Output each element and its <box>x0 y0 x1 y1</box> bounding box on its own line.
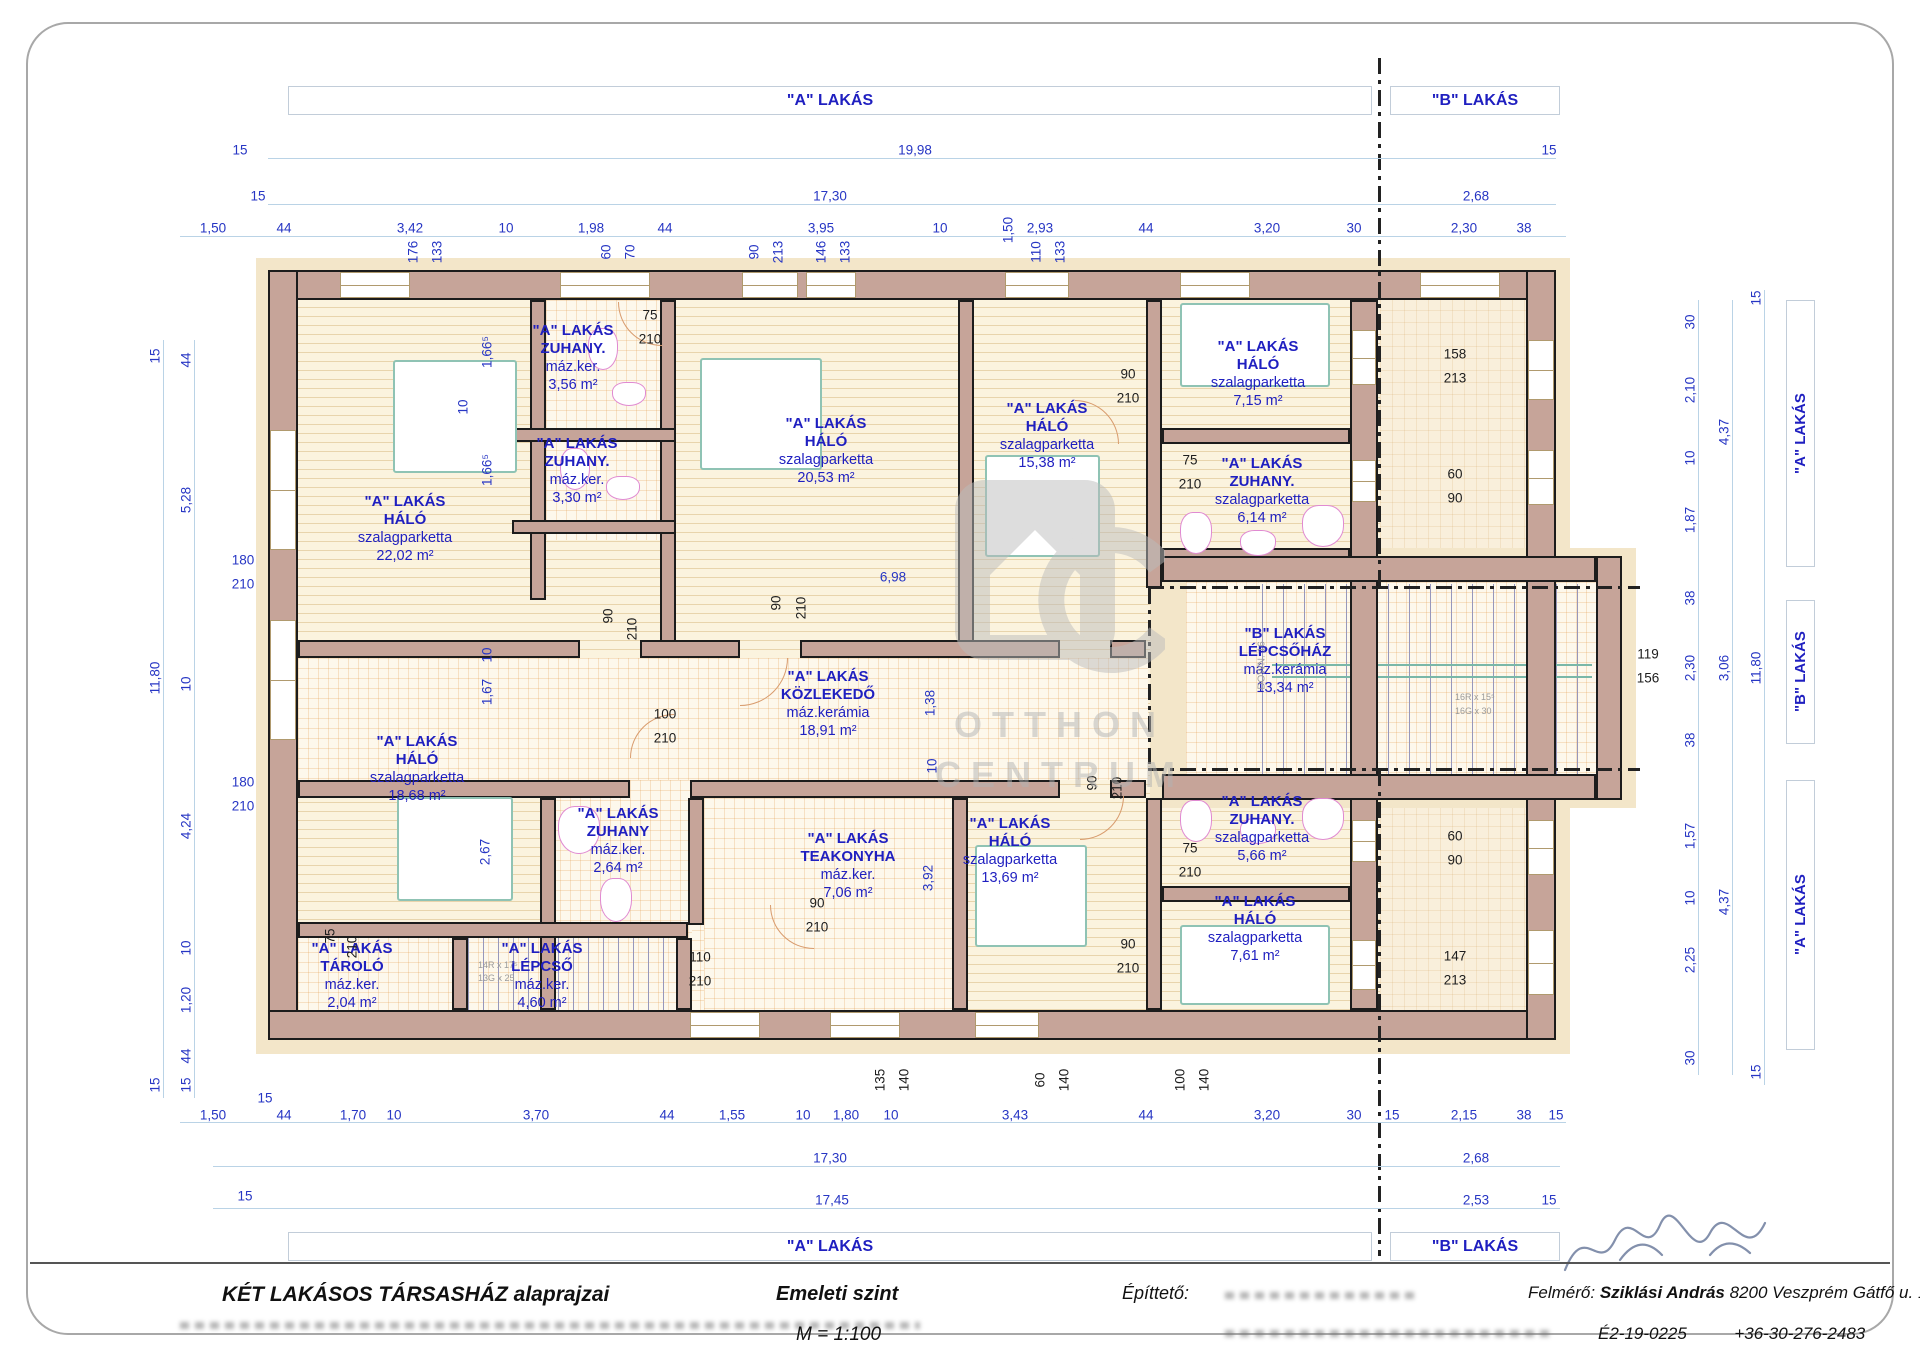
room-name: HÁLÓ <box>963 833 1057 851</box>
dimension-label: 38 <box>1516 1108 1531 1123</box>
room-label: "A" LAKÁS ZUHANY máz.ker. 2,64 m² <box>578 805 659 877</box>
banner-bottom-apartment-a: "A" LAKÁS <box>288 1232 1372 1261</box>
dimension-label: 135 <box>873 1069 888 1092</box>
room-name: ZUHANY. <box>533 340 614 358</box>
dimension-label: 210 <box>654 731 677 746</box>
dimension-label: 1,50 <box>1001 217 1016 243</box>
floor-plan-sheet: "A" LAKÁS ZUHANY. máz.ker. 3,56 m²"A" LA… <box>0 0 1920 1357</box>
room-label: "A" LAKÁS ZUHANY. máz.ker. 3,30 m² <box>537 435 618 507</box>
stair-b-note-1: 16R x 15⁵ <box>1455 692 1495 702</box>
wall <box>1350 300 1378 1010</box>
banner-right-apartment-a-top: "A" LAKÁS <box>1786 300 1815 567</box>
dimension-label: 2,15 <box>1451 1108 1477 1123</box>
dimension-label: 180 <box>232 775 255 790</box>
dimension-label: 10 <box>932 221 947 236</box>
dimension-label: 90 <box>809 896 824 911</box>
dimension-label: 44 <box>659 1108 674 1123</box>
dimension-label: 140 <box>1197 1069 1212 1092</box>
title-scale: M = 1:100 <box>796 1324 881 1346</box>
dimension-label: 210 <box>1110 777 1125 800</box>
surveyor-label: Felmérő: <box>1528 1283 1595 1302</box>
room-apartment: "A" LAKÁS <box>963 815 1057 833</box>
room-floor-material: máz.kerámia <box>1239 661 1332 679</box>
window <box>1528 450 1554 505</box>
dimension-label: 60 <box>1033 1072 1048 1087</box>
surveyor-name: Sziklási András <box>1600 1283 1725 1302</box>
dimension-label: 133 <box>430 241 445 264</box>
room-name: HÁLÓ <box>1000 418 1094 436</box>
dimension-label: 90 <box>1120 367 1135 382</box>
banner-top-apartment-a: "A" LAKÁS <box>288 86 1372 115</box>
surveyor-address: 8200 Veszprém Gátfő u. 1. <box>1730 1283 1920 1302</box>
dimension-label: 17,30 <box>813 1151 847 1166</box>
room-label: "A" LAKÁS HÁLÓ szalagparketta 13,69 m² <box>963 815 1057 887</box>
room-area: 7,15 m² <box>1211 392 1305 410</box>
room-area: 7,61 m² <box>1208 947 1302 965</box>
dimension-label: 15 <box>257 1091 272 1106</box>
stair-a-note-2: 13G x 25 <box>478 973 515 983</box>
window <box>830 1012 900 1038</box>
window <box>690 1012 760 1038</box>
room-name: HÁLÓ <box>370 751 464 769</box>
room-area: 13,69 m² <box>963 869 1057 887</box>
banner-bottom-apartment-b: "B" LAKÁS <box>1390 1232 1560 1261</box>
window <box>1352 940 1376 990</box>
dimension-line <box>180 236 1566 237</box>
dimension-label: 15 <box>1541 143 1556 158</box>
bath-fixture <box>1180 800 1212 842</box>
window <box>975 1012 1039 1038</box>
dimension-label: 90 <box>601 608 616 623</box>
room-area: 18,91 m² <box>781 722 875 740</box>
room-name: HÁLÓ <box>1211 356 1305 374</box>
room-floor-material: máz.kerámia <box>781 704 875 722</box>
window <box>270 430 296 550</box>
room-apartment: "A" LAKÁS <box>358 493 452 511</box>
dimension-label: 2,30 <box>1451 221 1477 236</box>
property-line <box>1148 588 1151 770</box>
dimension-line <box>213 1166 1560 1167</box>
dimension-label: 10 <box>179 676 194 691</box>
dimension-label: 30 <box>1346 221 1361 236</box>
bath-fixture <box>612 382 646 406</box>
room-name: ZUHANY. <box>1215 473 1309 491</box>
room-label: "A" LAKÁS TEAKONYHA máz.ker. 7,06 m² <box>800 830 895 902</box>
dimension-label: 44 <box>657 221 672 236</box>
room-apartment: "A" LAKÁS <box>1211 338 1305 356</box>
dimension-label: 210 <box>639 332 662 347</box>
dimension-label: 210 <box>1117 961 1140 976</box>
dimension-label: 70 <box>623 244 638 259</box>
dimension-label: 19,98 <box>898 143 932 158</box>
dimension-label: 210 <box>1179 477 1202 492</box>
room-floor-material: szalagparketta <box>1215 491 1309 509</box>
window <box>1528 930 1554 995</box>
dimension-label: 17,30 <box>813 189 847 204</box>
title-surveyor-line-2: É2-19-0225 +36-30-276-2483 <box>1598 1324 1865 1344</box>
title-client-label: Építtető: <box>1122 1283 1189 1304</box>
signature <box>1560 1205 1770 1295</box>
dimension-label: 1,50 <box>200 1108 226 1123</box>
dimension-label: 110 <box>689 950 711 965</box>
room-floor-material: szalagparketta <box>779 451 873 469</box>
dimension-label: 213 <box>1444 371 1467 386</box>
wall <box>1596 556 1622 800</box>
room-area: 3,30 m² <box>537 489 618 507</box>
dimension-label: 1,66⁵ <box>480 336 495 368</box>
dimension-label: 38 <box>1683 732 1698 747</box>
dimension-label: 10 <box>456 399 471 414</box>
dimension-label: 60 <box>1447 829 1462 844</box>
window <box>1352 460 1376 502</box>
dimension-label: 1,80 <box>833 1108 859 1123</box>
title-blurred-client-2 <box>1225 1330 1555 1337</box>
room-name: HÁLÓ <box>1208 911 1302 929</box>
room-name: TÁROLÓ <box>312 958 393 976</box>
dimension-label: 2,67 <box>478 839 493 865</box>
dimension-label: 146 <box>814 241 829 264</box>
dimension-label: 6,98 <box>880 570 906 585</box>
dimension-label: 100 <box>654 707 677 722</box>
dimension-label: 44 <box>179 352 194 367</box>
banner-right-apartment-b: "B" LAKÁS <box>1786 600 1815 744</box>
dimension-label: 10 <box>925 758 940 773</box>
window <box>1352 820 1376 862</box>
dimension-label: 2,53 <box>1463 1193 1489 1208</box>
dimension-label: 210 <box>232 799 255 814</box>
dimension-label: 119 <box>1637 647 1659 662</box>
room-apartment: "A" LAKÁS <box>779 415 873 433</box>
bath-fixture <box>1240 530 1276 556</box>
room-apartment: "A" LAKÁS <box>370 733 464 751</box>
dimension-label: 1,55 <box>719 1108 745 1123</box>
room-name: TEAKONYHA <box>800 848 895 866</box>
window <box>742 272 798 298</box>
dimension-label: 1,67 <box>480 679 495 705</box>
wall <box>800 640 1060 658</box>
wall <box>268 270 1556 300</box>
dimension-label: 4,37 <box>1717 889 1732 915</box>
room-name: LÉPCSŐHÁZ <box>1239 643 1332 661</box>
dimension-label: 38 <box>1516 221 1531 236</box>
dimension-line <box>163 340 164 1098</box>
stair-a-note-1: 14R x 17⁵ <box>478 960 518 970</box>
wall <box>268 1010 1556 1040</box>
wall <box>298 640 580 658</box>
room-area: 3,56 m² <box>533 376 614 394</box>
window <box>1420 272 1500 298</box>
dimension-label: 110 <box>1029 241 1044 263</box>
room-label: "A" LAKÁS ZUHANY. szalagparketta 6,14 m² <box>1215 455 1309 527</box>
room-area: 15,38 m² <box>1000 454 1094 472</box>
room-area: 20,53 m² <box>779 469 873 487</box>
room-floor-material: szalagparketta <box>358 529 452 547</box>
dimension-label: 15 <box>250 189 265 204</box>
room-floor-material: szalagparketta <box>1215 829 1309 847</box>
room-name: KÖZLEKEDŐ <box>781 686 875 704</box>
room-apartment: "A" LAKÁS <box>537 435 618 453</box>
dimension-label: 2,68 <box>1463 1151 1489 1166</box>
wall <box>660 300 676 658</box>
dimension-label: 210 <box>1179 865 1202 880</box>
bed <box>397 797 513 901</box>
stair-b-note-2: 16G x 30 <box>1455 706 1492 716</box>
dimension-label: 2,30 <box>1683 655 1698 681</box>
dimension-label: 213 <box>1444 973 1467 988</box>
room-apartment: "A" LAKÁS <box>781 668 875 686</box>
dimension-label: 60 <box>1447 467 1462 482</box>
dimension-label: 147 <box>1444 949 1467 964</box>
dimension-label: 17,45 <box>815 1193 849 1208</box>
room-area: 6,14 m² <box>1215 509 1309 527</box>
dimension-label: 156 <box>1637 671 1660 686</box>
dimension-label: 158 <box>1444 347 1467 362</box>
bath-fixture <box>1180 512 1212 554</box>
property-line <box>1148 586 1640 589</box>
room-name: ZUHANY. <box>1215 811 1309 829</box>
room-name: ZUHANY. <box>537 453 618 471</box>
room-label: "A" LAKÁS HÁLÓ szalagparketta 18,68 m² <box>370 733 464 805</box>
dimension-label: 10 <box>1683 450 1698 465</box>
room-label: "A" LAKÁS KÖZLEKEDŐ máz.kerámia 18,91 m² <box>781 668 875 740</box>
room-label: "A" LAKÁS HÁLÓ szalagparketta 7,61 m² <box>1208 893 1302 965</box>
surveyor-id: É2-19-0225 <box>1598 1324 1687 1343</box>
room-area: 5,66 m² <box>1215 847 1309 865</box>
title-blurred-client <box>1225 1292 1415 1299</box>
dimension-line <box>194 340 195 1098</box>
dimension-label: 133 <box>1053 241 1068 264</box>
room-label: "B" LAKÁS LÉPCSŐHÁZ máz.kerámia 13,34 m² <box>1239 625 1332 697</box>
dimension-label: 10 <box>386 1108 401 1123</box>
dimension-label: 100 <box>1173 1069 1188 1092</box>
dimension-label: 2,68 <box>1463 189 1489 204</box>
dimension-label: 1,66⁵ <box>480 454 495 486</box>
dimension-label: 10 <box>480 647 495 662</box>
dimension-label: 90 <box>1120 937 1135 952</box>
dimension-label: 11,80 <box>148 662 163 695</box>
wall <box>452 938 468 1010</box>
dimension-label: 133 <box>838 241 853 264</box>
room-area: 2,64 m² <box>578 859 659 877</box>
room-floor-material: szalagparketta <box>1000 436 1094 454</box>
dimension-label: 44 <box>276 1108 291 1123</box>
window <box>1528 820 1554 875</box>
room-floor-material: máz.ker. <box>312 976 393 994</box>
dimension-label: 75 <box>1182 453 1197 468</box>
wall <box>512 520 676 534</box>
title-level: Emeleti szint <box>776 1283 898 1306</box>
property-line <box>1378 770 1381 1256</box>
dimension-label: 60 <box>599 244 614 259</box>
dimension-label: 15 <box>179 1077 194 1092</box>
wall <box>688 798 704 925</box>
dimension-label: 2,25 <box>1683 947 1698 973</box>
dimension-label: 15 <box>237 1189 252 1204</box>
dimension-label: 5,28 <box>179 487 194 513</box>
room-apartment: "A" LAKÁS <box>1000 400 1094 418</box>
dimension-label: 75 <box>323 928 338 943</box>
room-floor-material: szalagparketta <box>1208 929 1302 947</box>
dimension-label: 210 <box>345 936 360 959</box>
room-name: HÁLÓ <box>779 433 873 451</box>
surveyor-phone: +36-30-276-2483 <box>1734 1324 1865 1343</box>
window <box>1352 330 1376 385</box>
dimension-label: 38 <box>1683 590 1698 605</box>
dimension-label: 11,80 <box>1749 652 1764 685</box>
dimension-label: 30 <box>1683 314 1698 329</box>
room-label: "A" LAKÁS HÁLÓ szalagparketta 7,15 m² <box>1211 338 1305 410</box>
banner-right-apartment-a-bottom: "A" LAKÁS <box>1786 780 1815 1050</box>
room-area: 2,04 m² <box>312 994 393 1012</box>
dimension-label: 3,20 <box>1254 1108 1280 1123</box>
dimension-label: 210 <box>625 618 640 641</box>
property-line <box>1148 768 1640 771</box>
dimension-label: 3,70 <box>523 1108 549 1123</box>
room-label: "A" LAKÁS ZUHANY. szalagparketta 5,66 m² <box>1215 793 1309 865</box>
property-line <box>1378 58 1381 588</box>
dimension-label: 1,70 <box>340 1108 366 1123</box>
wall <box>1162 428 1350 444</box>
dimension-label: 90 <box>1447 853 1462 868</box>
window <box>1180 272 1250 298</box>
dimension-label: 44 <box>179 1048 194 1063</box>
dimension-label: 30 <box>1683 1050 1698 1065</box>
dimension-label: 4,24 <box>179 813 194 839</box>
dimension-label: 140 <box>1057 1069 1072 1092</box>
dimension-label: 15 <box>1384 1108 1399 1123</box>
dimension-label: 210 <box>1117 391 1140 406</box>
room-floor-material: szalagparketta <box>963 851 1057 869</box>
dimension-label: 210 <box>794 597 809 620</box>
dimension-label: 3,95 <box>808 221 834 236</box>
dimension-label: 3,42 <box>397 221 423 236</box>
dimension-label: 180 <box>232 553 255 568</box>
dimension-label: 1,50 <box>200 221 226 236</box>
room-area: 13,34 m² <box>1239 679 1332 697</box>
room-label: "A" LAKÁS HÁLÓ szalagparketta 20,53 m² <box>779 415 873 487</box>
room-label: "A" LAKÁS ZUHANY. máz.ker. 3,56 m² <box>533 322 614 394</box>
room-apartment: "A" LAKÁS <box>1215 455 1309 473</box>
room-floor-material: szalagparketta <box>370 769 464 787</box>
room-apartment: "A" LAKÁS <box>533 322 614 340</box>
dimension-label: 15 <box>1749 290 1764 305</box>
room-floor-material: máz.ker. <box>578 841 659 859</box>
wall <box>690 780 1060 798</box>
dimension-label: 15 <box>1749 1064 1764 1079</box>
wall <box>958 300 974 658</box>
dimension-label: 2,93 <box>1027 221 1053 236</box>
dimension-line <box>268 158 1556 159</box>
title-block-top-rule <box>30 1262 1890 1264</box>
title-surveyor-line: Felmérő: Sziklási András 8200 Veszprém G… <box>1528 1283 1920 1303</box>
dimension-label: 3,20 <box>1254 221 1280 236</box>
room-label: "A" LAKÁS HÁLÓ szalagparketta 15,38 m² <box>1000 400 1094 472</box>
dimension-label: 30 <box>1346 1108 1361 1123</box>
dimension-label: 90 <box>769 595 784 610</box>
stair-down-label: DOWN. 16 <box>1257 641 1268 689</box>
dimension-label: 75 <box>1182 841 1197 856</box>
dimension-line <box>213 1208 1560 1209</box>
room-name: HÁLÓ <box>358 511 452 529</box>
dimension-label: 1,20 <box>179 987 194 1013</box>
room-apartment: "A" LAKÁS <box>1208 893 1302 911</box>
window <box>1005 272 1069 298</box>
dimension-label: 10 <box>883 1108 898 1123</box>
room-apartment: "A" LAKÁS <box>1215 793 1309 811</box>
room-label: "A" LAKÁS HÁLÓ szalagparketta 22,02 m² <box>358 493 452 565</box>
room-apartment: "A" LAKÁS <box>578 805 659 823</box>
dimension-label: 3,43 <box>1002 1108 1028 1123</box>
dimension-label: 2,10 <box>1683 377 1698 403</box>
dimension-label: 1,38 <box>923 690 938 716</box>
dimension-label: 44 <box>1138 1108 1153 1123</box>
dimension-label: 10 <box>1683 890 1698 905</box>
wall <box>1146 798 1162 1010</box>
dimension-label: 210 <box>232 577 255 592</box>
window <box>560 272 650 298</box>
dimension-label: 10 <box>795 1108 810 1123</box>
room-floor-material: máz.ker. <box>800 866 895 884</box>
wall <box>1110 640 1146 658</box>
dimension-label: 1,87 <box>1683 507 1698 533</box>
bed <box>393 360 517 473</box>
dimension-label: 1,57 <box>1683 823 1698 849</box>
dimension-label: 10 <box>498 221 513 236</box>
dimension-line <box>1732 300 1733 1075</box>
window <box>270 620 296 740</box>
dimension-label: 90 <box>1447 491 1462 506</box>
room-area: 18,68 m² <box>370 787 464 805</box>
window <box>340 272 410 298</box>
room-floor-material: máz.ker. <box>533 358 614 376</box>
dimension-line <box>1764 290 1765 1085</box>
room-apartment: "B" LAKÁS <box>1239 625 1332 643</box>
dimension-label: 15 <box>148 348 163 363</box>
bath-fixture <box>600 878 632 922</box>
dimension-label: 140 <box>897 1069 912 1092</box>
dimension-label: 210 <box>806 920 829 935</box>
window <box>806 272 856 298</box>
title-project: KÉT LAKÁSOS TÁRSASHÁZ alaprajzai <box>222 1283 609 1307</box>
dimension-label: 90 <box>1085 775 1100 790</box>
dimension-label: 1,98 <box>578 221 604 236</box>
dimension-label: 4,37 <box>1717 419 1732 445</box>
room-apartment: "A" LAKÁS <box>800 830 895 848</box>
room-floor-material: szalagparketta <box>1211 374 1305 392</box>
dimension-line <box>1698 300 1699 1075</box>
dimension-label: 15 <box>232 143 247 158</box>
banner-top-apartment-b: "B" LAKÁS <box>1390 86 1560 115</box>
dimension-label: 90 <box>747 244 762 259</box>
dimension-label: 15 <box>148 1077 163 1092</box>
dimension-label: 176 <box>406 241 421 264</box>
room-name: ZUHANY <box>578 823 659 841</box>
room-area: 22,02 m² <box>358 547 452 565</box>
room-apartment: "A" LAKÁS <box>502 940 583 958</box>
room-floor-material: máz.ker. <box>537 471 618 489</box>
room-area: 4,60 m² <box>502 994 583 1012</box>
dimension-label: 10 <box>179 940 194 955</box>
dimension-label: 3,06 <box>1717 655 1732 681</box>
dimension-label: 44 <box>1138 221 1153 236</box>
dimension-label: 213 <box>771 241 786 264</box>
dimension-label: 75 <box>642 308 657 323</box>
dimension-label: 44 <box>276 221 291 236</box>
dimension-label: 3,92 <box>921 865 936 891</box>
wall <box>640 640 740 658</box>
window <box>1528 340 1554 400</box>
dimension-label: 210 <box>689 974 712 989</box>
